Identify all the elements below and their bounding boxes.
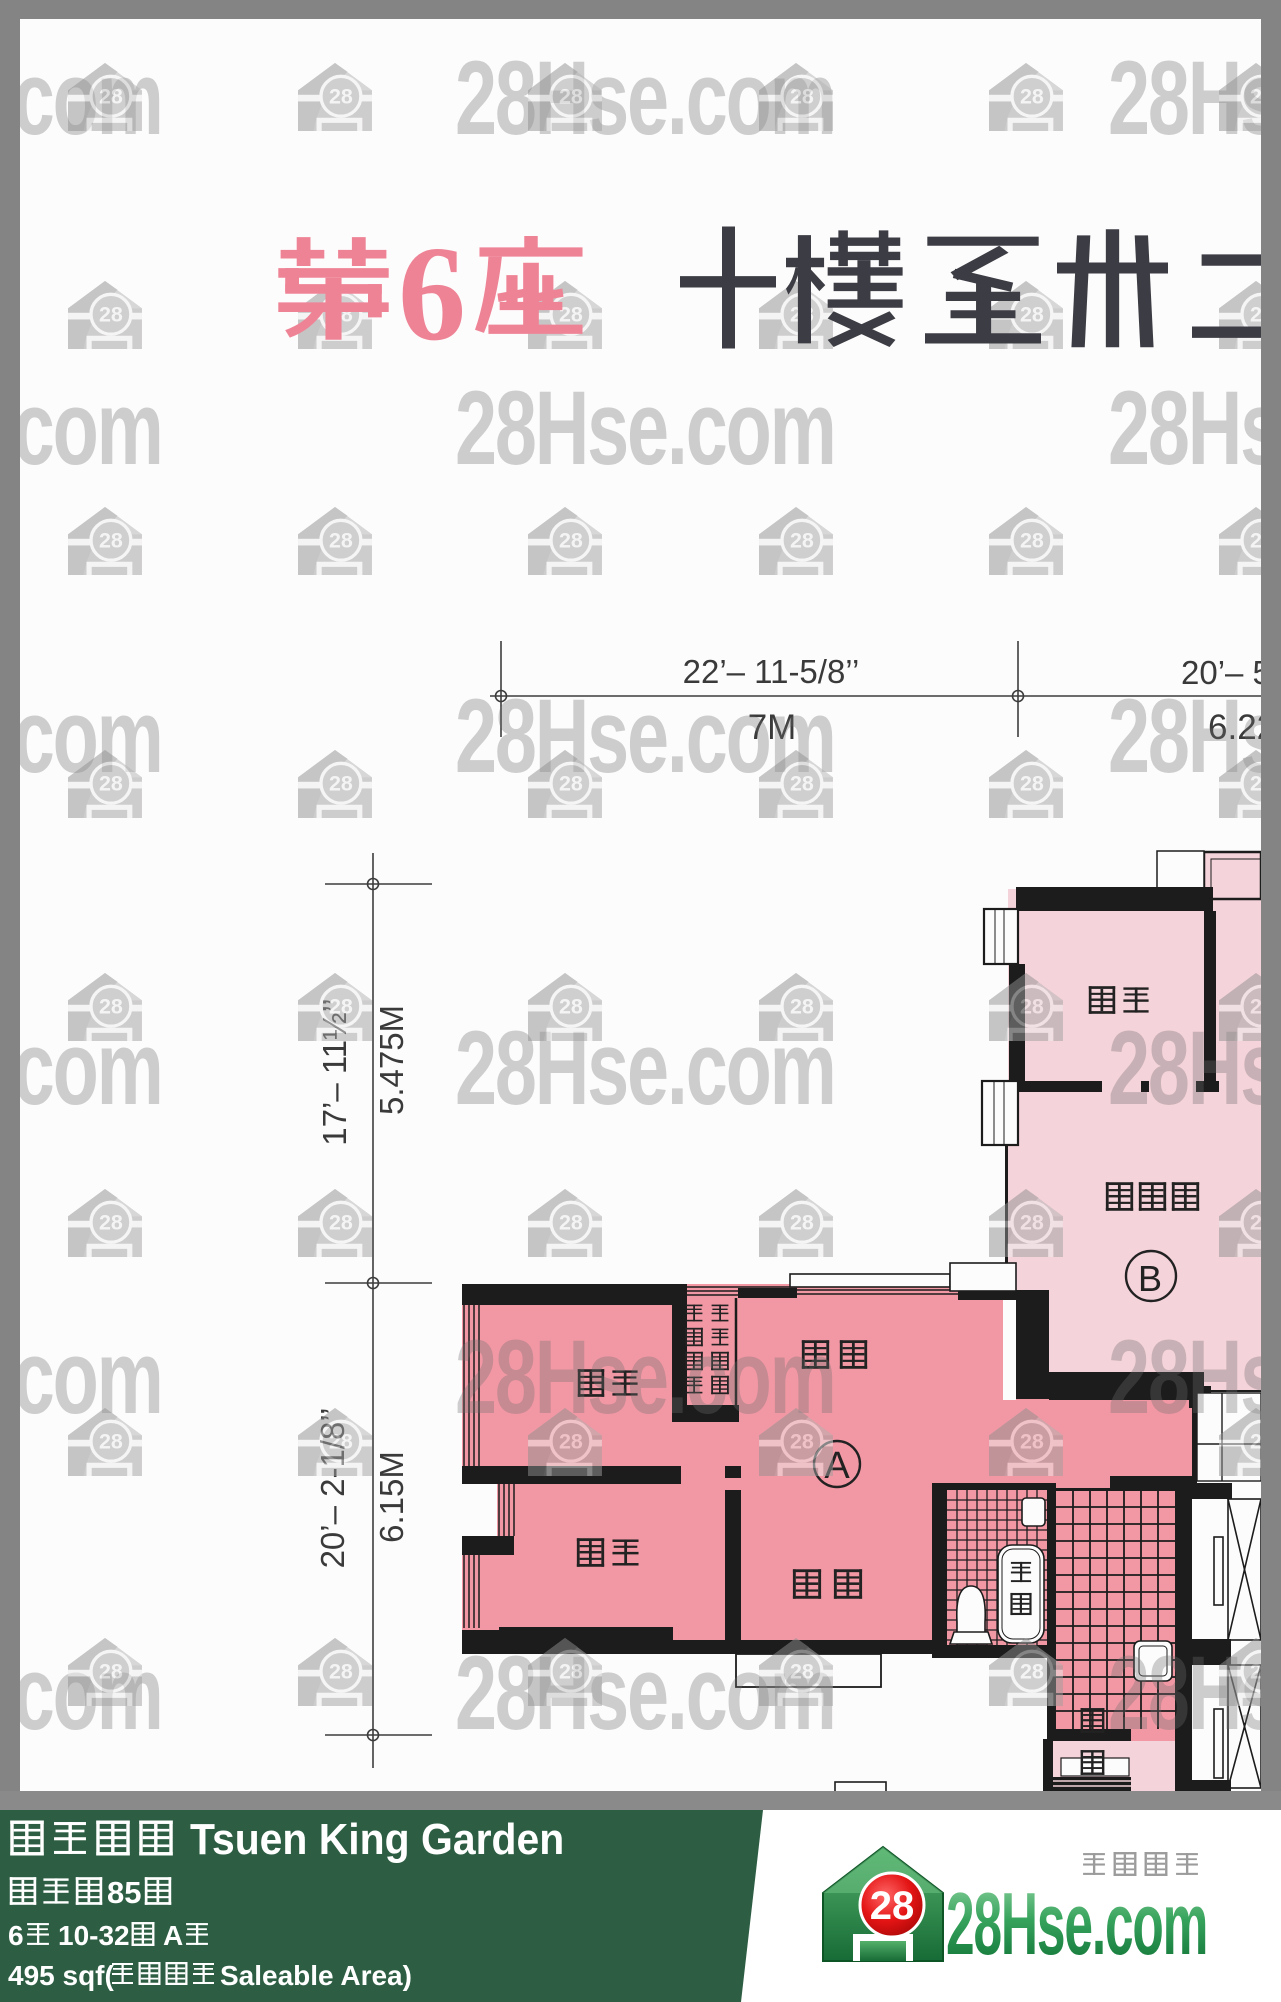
svg-text:28Hse.com: 28Hse.com xyxy=(455,370,835,487)
svg-text:6.15M: 6.15M xyxy=(373,1451,410,1543)
svg-text:6: 6 xyxy=(8,1920,24,1951)
svg-text:10-32: 10-32 xyxy=(58,1920,130,1951)
svg-text:495 sqf(: 495 sqf( xyxy=(8,1960,114,1991)
svg-text:A: A xyxy=(163,1920,183,1951)
svg-text:Tsuen King Garden: Tsuen King Garden xyxy=(190,1816,564,1865)
svg-text:B: B xyxy=(1138,1258,1162,1299)
svg-text:28: 28 xyxy=(870,1884,915,1928)
svg-text:28Hse.com: 28Hse.com xyxy=(0,370,162,487)
svg-text:28Hse.com: 28Hse.com xyxy=(455,1319,835,1436)
svg-text:28Hse.com: 28Hse.com xyxy=(1108,370,1281,487)
svg-text:28Hse.com: 28Hse.com xyxy=(946,1876,1207,1974)
svg-text:28Hse.com: 28Hse.com xyxy=(0,1319,162,1436)
svg-text:85: 85 xyxy=(107,1875,141,1910)
svg-text:6: 6 xyxy=(398,219,466,369)
svg-text:5.475M: 5.475M xyxy=(373,1005,410,1115)
svg-text:Saleable Area): Saleable Area) xyxy=(220,1960,412,1991)
